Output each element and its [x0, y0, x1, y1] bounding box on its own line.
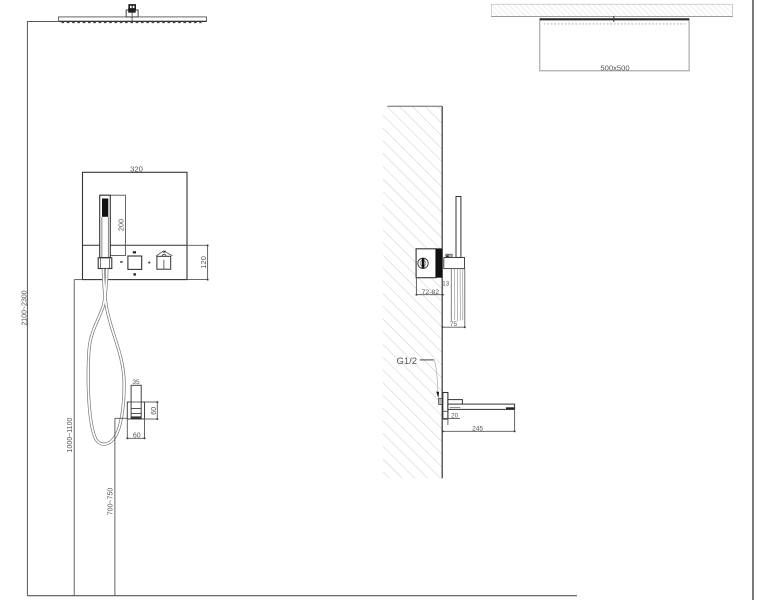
svg-text:2100~2300: 2100~2300	[21, 290, 28, 325]
svg-text:120: 120	[199, 256, 208, 269]
svg-text:G1/2: G1/2	[396, 356, 417, 367]
svg-text:13: 13	[442, 280, 449, 287]
svg-text:60: 60	[151, 407, 158, 415]
svg-text:75: 75	[450, 321, 458, 328]
svg-text:245: 245	[472, 425, 483, 432]
svg-text:700~750: 700~750	[108, 488, 115, 516]
svg-text:320: 320	[130, 165, 143, 174]
svg-text:200: 200	[116, 219, 125, 232]
svg-text:20: 20	[451, 413, 458, 420]
svg-text:500x500: 500x500	[600, 63, 629, 72]
svg-text:1000~1100: 1000~1100	[67, 418, 74, 453]
svg-text:35: 35	[132, 379, 140, 386]
svg-text:72-82: 72-82	[422, 289, 440, 296]
svg-text:60: 60	[133, 433, 141, 440]
